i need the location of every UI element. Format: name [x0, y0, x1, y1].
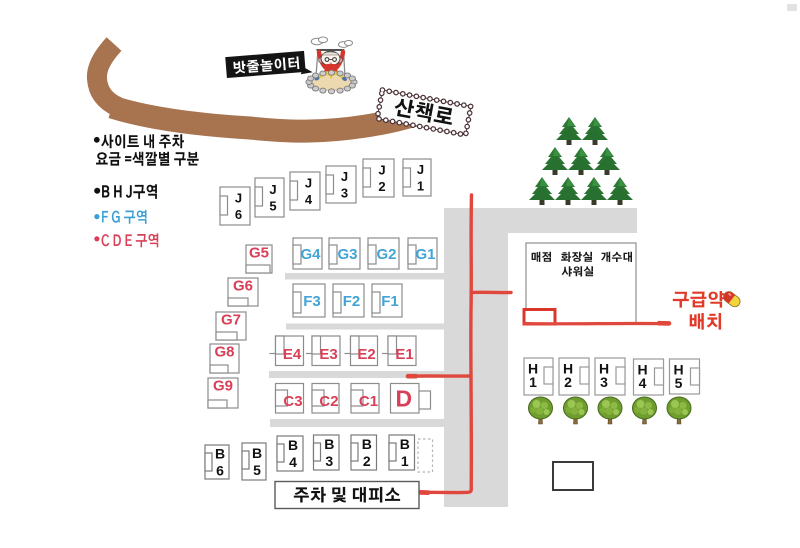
svg-text:G6: G6: [233, 278, 253, 295]
svg-text:B: B: [252, 445, 262, 461]
svg-text:4: 4: [289, 454, 297, 470]
svg-text:C3: C3: [283, 393, 302, 410]
svg-text:4: 4: [639, 375, 647, 391]
svg-text:3: 3: [341, 186, 348, 201]
svg-text:J: J: [378, 162, 385, 177]
svg-text:2: 2: [564, 374, 572, 390]
svg-text:4: 4: [305, 192, 313, 207]
svg-text:6: 6: [216, 462, 224, 478]
svg-text:J: J: [235, 190, 242, 205]
svg-text:1: 1: [417, 179, 424, 194]
svg-text:C2: C2: [319, 393, 338, 410]
svg-text:B: B: [324, 436, 334, 452]
svg-text:1: 1: [401, 453, 409, 469]
svg-text:G9: G9: [213, 378, 233, 395]
svg-text:G8: G8: [214, 344, 234, 361]
svg-text:E1: E1: [395, 346, 413, 363]
svg-text:E3: E3: [319, 346, 337, 363]
svg-text:J: J: [305, 175, 312, 190]
svg-text:5: 5: [253, 462, 261, 478]
svg-text:B: B: [362, 436, 372, 452]
svg-text:1: 1: [529, 374, 537, 390]
svg-text:G3: G3: [337, 246, 357, 263]
svg-text:E4: E4: [283, 346, 302, 363]
svg-text:J: J: [417, 162, 424, 177]
svg-text:G5: G5: [249, 245, 269, 262]
svg-text:D: D: [395, 386, 412, 412]
svg-text:2: 2: [378, 179, 385, 194]
svg-text:F1: F1: [381, 293, 399, 310]
svg-text:5: 5: [269, 199, 276, 214]
svg-text:C1: C1: [359, 393, 378, 410]
svg-text:G1: G1: [415, 246, 435, 263]
svg-text:F2: F2: [343, 293, 361, 310]
svg-text:G7: G7: [221, 312, 241, 329]
svg-text:B: B: [215, 446, 225, 462]
svg-text:G2: G2: [376, 246, 396, 263]
svg-text:2: 2: [363, 453, 371, 469]
svg-text:G4: G4: [300, 246, 321, 263]
svg-text:B: B: [288, 437, 298, 453]
svg-text:J: J: [341, 169, 348, 184]
svg-text:F3: F3: [303, 293, 321, 310]
svg-text:6: 6: [235, 207, 242, 222]
svg-text:3: 3: [600, 374, 608, 390]
svg-text:J: J: [269, 182, 276, 197]
svg-text:B: B: [400, 436, 410, 452]
svg-text:3: 3: [325, 453, 333, 469]
svg-text:5: 5: [675, 375, 683, 391]
svg-text:E2: E2: [357, 346, 375, 363]
